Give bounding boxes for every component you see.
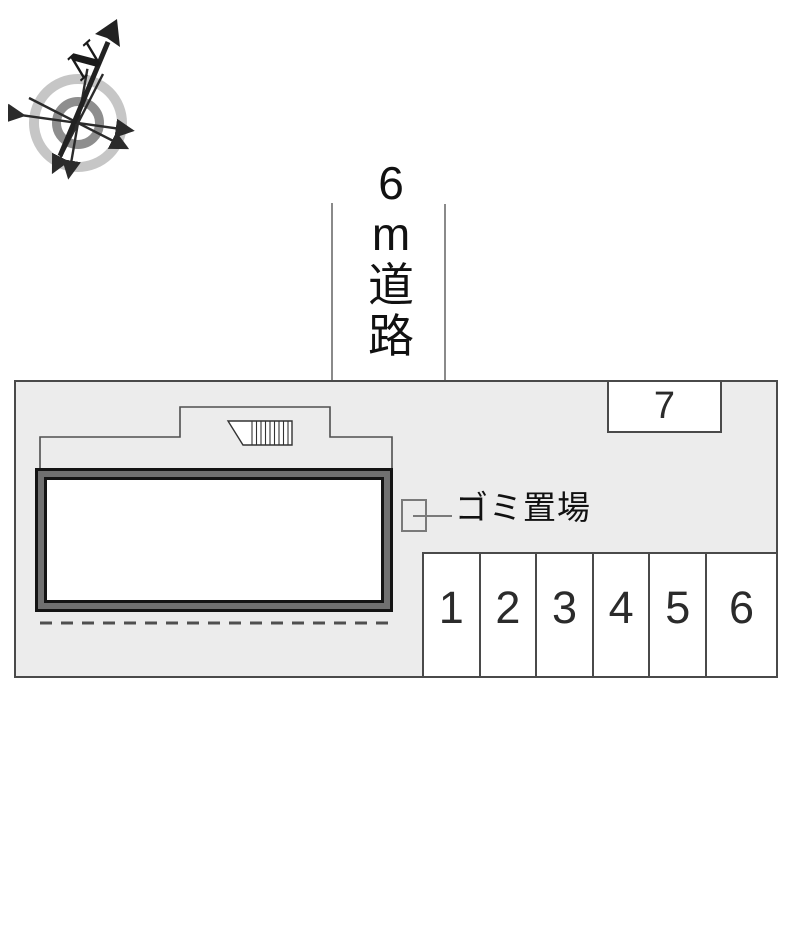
road-label-char: 6	[352, 158, 430, 209]
parking-stall-6: 6	[705, 554, 776, 676]
road-edge-right	[444, 204, 446, 380]
building-footprint-outline	[40, 407, 392, 468]
stairs-icon	[228, 421, 292, 445]
parking-stall-7: 7	[607, 380, 722, 433]
road-label-char: 道	[352, 260, 430, 311]
building-interior	[44, 477, 384, 603]
parking-stall-1: 1	[424, 554, 479, 676]
site-parcel: ゴミ置場 1 2 3 4 5 6 7	[14, 380, 778, 678]
site-plan-diagram: N 6 m 道 路	[0, 0, 800, 940]
garbage-area-label: ゴミ置場	[455, 490, 591, 526]
road-width-label: 6 m 道 路	[352, 158, 430, 362]
parking-stall-4: 4	[592, 554, 649, 676]
parking-stall-3: 3	[535, 554, 592, 676]
road-edge-left	[331, 203, 333, 380]
parking-stall-2: 2	[479, 554, 536, 676]
road-label-char: m	[352, 209, 430, 260]
road-label-char: 路	[352, 311, 430, 362]
parking-stall-5: 5	[648, 554, 705, 676]
garbage-leader-line	[413, 515, 452, 517]
compass-rays	[24, 69, 133, 177]
compass-rose-icon: N	[8, 6, 156, 182]
building-footprint	[35, 468, 393, 612]
parking-stall-row: 1 2 3 4 5 6	[422, 552, 778, 678]
